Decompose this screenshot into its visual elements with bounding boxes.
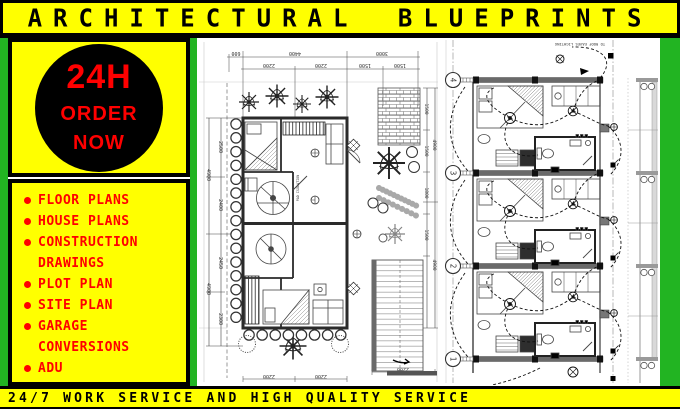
banner: ARCHITECTURAL BLUEPRINTS xyxy=(0,0,680,38)
service-item: CONSTRUCTION DRAWINGS xyxy=(24,232,184,274)
bottom-partial-area xyxy=(492,367,616,385)
bullet-icon xyxy=(24,365,31,372)
bullet-icon xyxy=(24,281,31,288)
gig-image: ARCHITECTURAL BLUEPRINTS 24H ORDER NOW F… xyxy=(0,0,680,409)
dim-label: 1500 xyxy=(394,62,406,68)
bullet-icon xyxy=(24,197,31,204)
floor-plan-sheet: 600 4400 3000 2200 2200 1500 1500 4900 4… xyxy=(197,38,440,385)
dim-label: 1500 xyxy=(423,229,429,240)
service-item: SITE PLAN xyxy=(24,295,184,316)
services-list: FLOOR PLANS HOUSE PLANS CONSTRUCTION DRA… xyxy=(12,183,186,379)
service-label: CONSTRUCTION DRAWINGS xyxy=(38,232,184,274)
dim-label: 1500 xyxy=(423,103,429,114)
service-label: HOUSE PLANS xyxy=(38,211,130,232)
grid-bubble-label: 3 xyxy=(449,171,458,176)
service-label: FLOOR PLANS xyxy=(38,190,130,211)
service-label: PLOT PLAN xyxy=(38,274,113,295)
right-green-strip xyxy=(660,38,680,386)
sidebar-green-strip xyxy=(190,38,197,386)
right-dimension-lines xyxy=(423,88,438,328)
dim-label: 4900 xyxy=(205,169,211,181)
floor-plan-drawing: 600 4400 3000 2200 2200 1500 1500 4900 4… xyxy=(197,38,440,385)
electrical-plan-drawing: TO ROOF EAVES LIGHTING 4 3 2 1 xyxy=(440,38,660,385)
services-panel: FLOOR PLANS HOUSE PLANS CONSTRUCTION DRA… xyxy=(8,179,190,386)
dim-label: 1800 xyxy=(423,187,429,198)
service-label: ADU xyxy=(38,358,63,379)
left-dimension-labels: 4900 4900 2500 2400 2450 2300 xyxy=(205,141,223,325)
service-item: ADU xyxy=(24,358,184,379)
badge-order-line1: ORDER xyxy=(60,103,137,126)
badge-panel: 24H ORDER NOW xyxy=(8,38,190,177)
bullet-icon xyxy=(24,302,31,309)
banner-title: ARCHITECTURAL BLUEPRINTS xyxy=(28,3,653,32)
electrical-plan-sheet: TO ROOF EAVES LIGHTING 4 3 2 1 xyxy=(440,38,660,385)
dim-label: 2300 xyxy=(217,313,223,325)
service-item: PLOT PLAN xyxy=(24,274,184,295)
dim-label: 2200 xyxy=(315,373,327,379)
dim-label: 4900 xyxy=(431,259,437,270)
dim-label: 1500 xyxy=(423,145,429,156)
roof-note-area: TO ROOF EAVES LIGHTING xyxy=(554,42,613,78)
service-item: HOUSE PLANS xyxy=(24,211,184,232)
dim-label: 2200 xyxy=(263,62,275,68)
dim-label: 2200 xyxy=(263,373,275,379)
bullet-icon xyxy=(24,239,31,246)
dim-label: 2450 xyxy=(217,257,223,269)
dim-label: 4900 xyxy=(205,283,211,295)
dim-label: 2200 xyxy=(315,62,327,68)
grid-bubble-label: 2 xyxy=(449,264,458,269)
footer-yellow-band: 24/7 WORK SERVICE AND HIGH QUALITY SERVI… xyxy=(0,389,680,407)
dim-label: 2400 xyxy=(217,199,223,211)
service-item: FLOOR PLANS xyxy=(24,190,184,211)
dwelling-modules xyxy=(450,79,621,361)
dim-label: 1500 xyxy=(359,62,371,68)
badge-order-line2: NOW xyxy=(73,132,125,155)
grid-bubble-label: 4 xyxy=(449,78,458,83)
roof-note-label: TO ROOF EAVES LIGHTING xyxy=(554,42,605,47)
dim-label: 3000 xyxy=(376,50,388,56)
stone-path xyxy=(378,88,420,145)
service-item: GARAGE CONVERSIONS xyxy=(24,316,184,358)
banner-yellow-band: ARCHITECTURAL BLUEPRINTS xyxy=(3,3,677,33)
bullet-icon xyxy=(24,218,31,225)
footer: 24/7 WORK SERVICE AND HIGH QUALITY SERVI… xyxy=(0,386,680,409)
dim-label: 4900 xyxy=(431,139,437,150)
badge-24h-circle: 24H ORDER NOW xyxy=(35,44,163,172)
footer-text: 24/7 WORK SERVICE AND HIGH QUALITY SERVI… xyxy=(0,391,471,406)
service-label: GARAGE CONVERSIONS xyxy=(38,316,184,358)
dim-label: 2500 xyxy=(217,141,223,153)
service-label: SITE PLAN xyxy=(38,295,113,316)
dim-label: 4400 xyxy=(289,50,301,56)
top-dimension-labels: 600 4400 3000 2200 2200 1500 1500 xyxy=(231,50,406,68)
dim-label: 600 xyxy=(231,50,240,56)
badge-hours: 24H xyxy=(66,58,131,97)
bullet-icon xyxy=(24,323,31,330)
left-green-strip xyxy=(0,38,8,386)
grid-bubble-label: 1 xyxy=(449,357,458,362)
pad-isolation-label: PAD ISOLATION xyxy=(296,175,300,202)
